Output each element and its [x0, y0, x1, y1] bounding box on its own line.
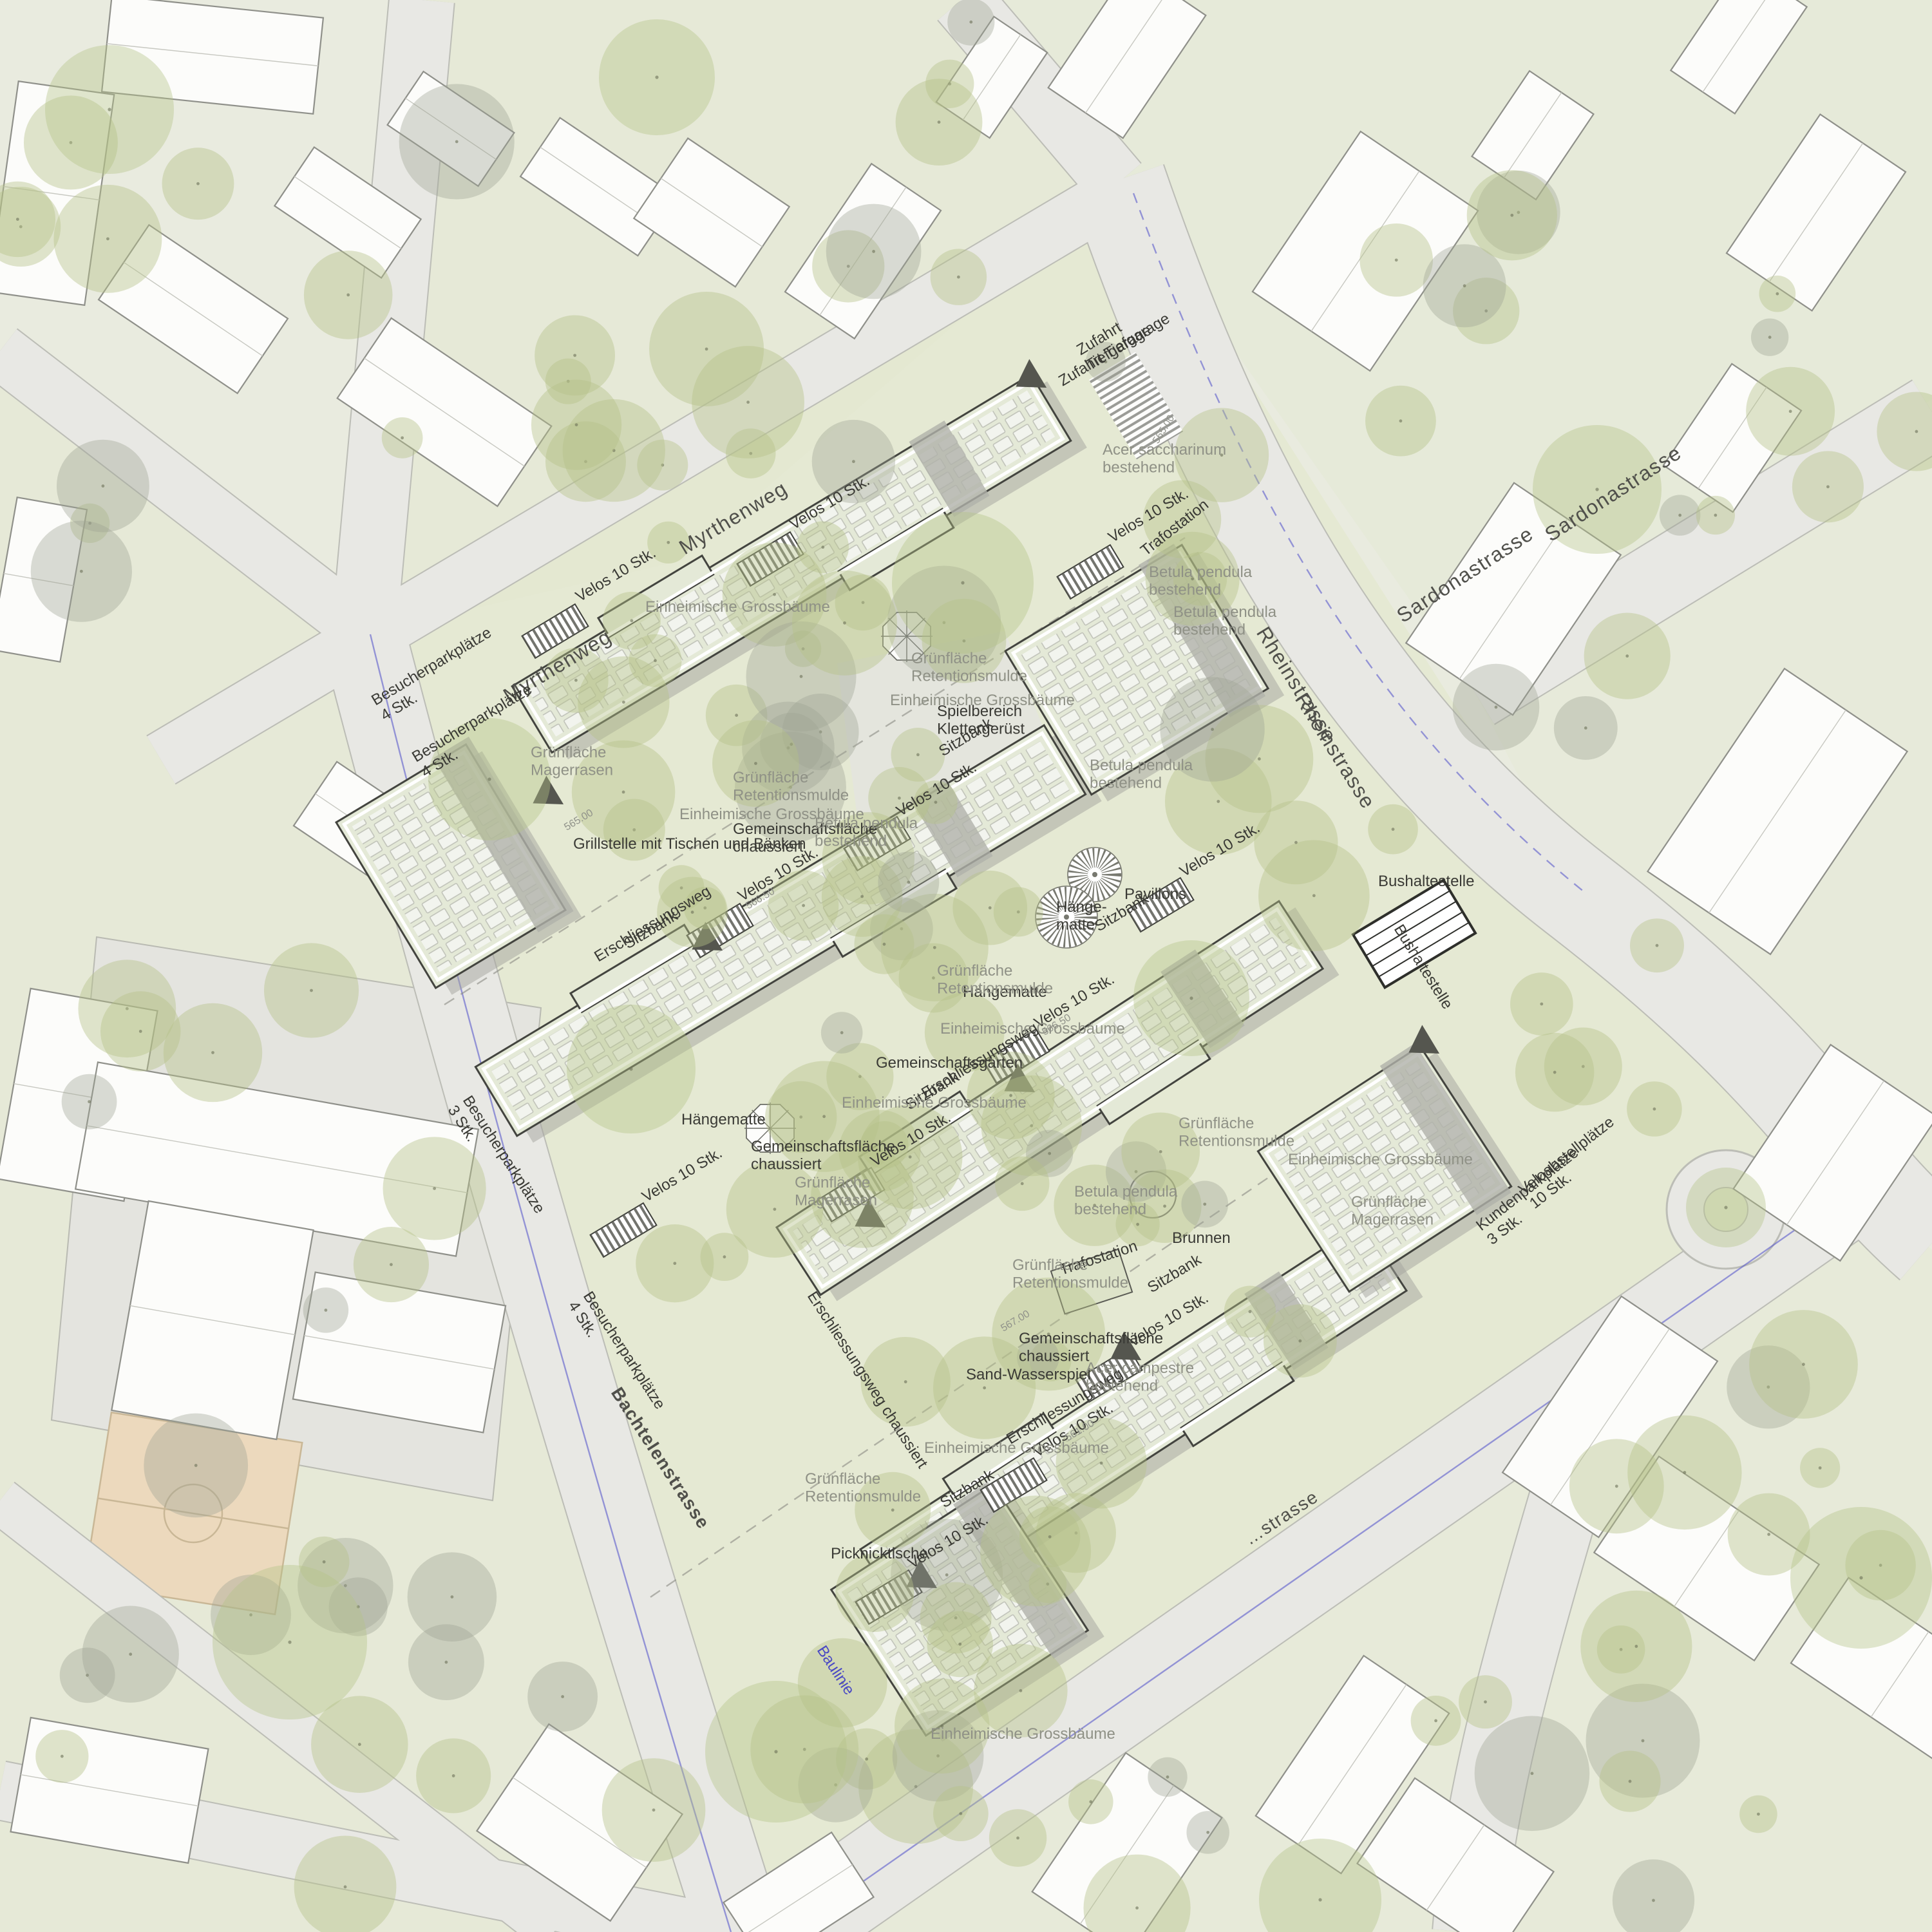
label-einheimische-grossbäume: Einheimische Grossbäume: [842, 1094, 1027, 1112]
label-pavillons: Pavillons: [1124, 885, 1186, 903]
label-sand-wasserspiel: Sand-Wasserspiel: [966, 1366, 1091, 1383]
label-picknicktische: Picknicktische: [831, 1545, 928, 1562]
label-einheimische-grossbäume: Einheimische Grossbäume: [1288, 1151, 1473, 1168]
label-grünfläche-magerrasen: GrünflächeMagerrasen: [795, 1174, 877, 1209]
site-plan: MyrthenwegMyrthenwegRheinstrasseRheinstr…: [0, 0, 1932, 1932]
label-einheimische-grossbäume: Einheimische Grossbäume: [931, 1725, 1115, 1743]
label-brunnen: Brunnen: [1172, 1229, 1231, 1247]
label-einheimische-grossbäume: Einheimische Grossbäume: [940, 1020, 1125, 1037]
label-hängematte: Hängematte: [681, 1111, 766, 1128]
label-einheimische-grossbäume: Einheimische Grossbäume: [890, 692, 1075, 709]
label-grünfläche-magerrasen: GrünflächeMagerrasen: [1351, 1193, 1434, 1229]
site-plan-canvas: MyrthenwegMyrthenwegRheinstrasseRheinstr…: [0, 0, 1932, 1932]
label-einheimische-grossbäume: Einheimische Grossbäume: [924, 1439, 1109, 1457]
label-einheimische-grossbäume: Einheimische Grossbäume: [645, 598, 830, 616]
context-building: [111, 1201, 313, 1439]
label-gemeinschaftsgarten: Gemeinschaftsgarten: [876, 1054, 1023, 1072]
label-grünfläche-magerrasen: GrünflächeMagerrasen: [531, 744, 613, 779]
label-bushaltestelle: Bushaltestelle: [1378, 873, 1474, 890]
